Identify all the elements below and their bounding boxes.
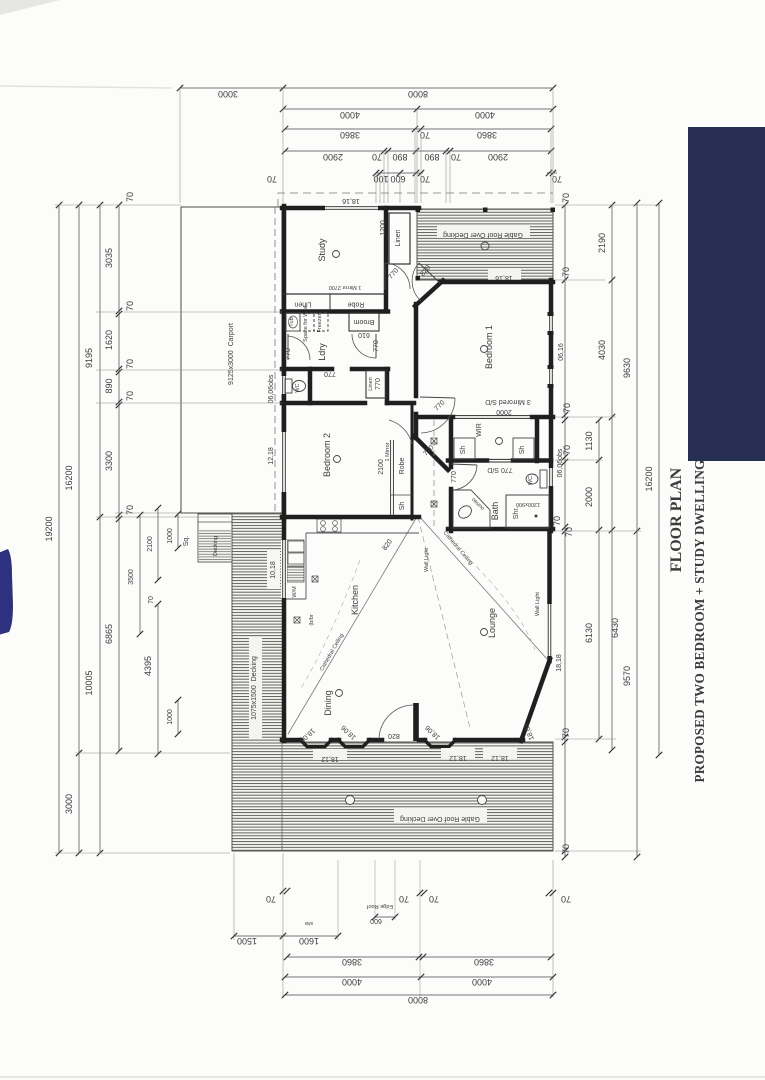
svg-text:3860: 3860 (474, 957, 494, 967)
svg-text:Robe: Robe (399, 458, 406, 475)
svg-text:3860: 3860 (340, 130, 360, 140)
svg-text:3 Mirrored S/D: 3 Mirrored S/D (485, 398, 531, 405)
svg-text:3500: 3500 (128, 569, 135, 585)
svg-text:890: 890 (424, 152, 439, 162)
svg-text:770: 770 (433, 399, 446, 412)
svg-text:70: 70 (420, 174, 430, 184)
svg-text:Wall Light: Wall Light (424, 548, 430, 572)
svg-text:770 S/D: 770 S/D (487, 466, 512, 473)
svg-text:Broom: Broom (354, 318, 375, 325)
svg-text:2100: 2100 (378, 459, 385, 475)
svg-text:770: 770 (387, 267, 400, 281)
svg-text:600: 600 (370, 917, 382, 924)
svg-text:1075x1500 Decking: 1075x1500 Decking (251, 656, 258, 720)
svg-text:Freezer: Freezer (317, 313, 323, 332)
svg-text:70: 70 (266, 894, 276, 904)
svg-text:70: 70 (552, 174, 562, 184)
svg-text:770: 770 (324, 370, 336, 377)
svg-text:18,18: 18,18 (556, 654, 563, 672)
svg-text:Study: Study (317, 238, 327, 262)
svg-text:9125x3000 Carport: 9125x3000 Carport (228, 323, 235, 385)
svg-text:Decking: Decking (213, 536, 219, 556)
svg-text:Sh: Sh (519, 446, 526, 455)
svg-text:Bedroom 2: Bedroom 2 (322, 433, 332, 477)
svg-text:70: 70 (125, 391, 135, 401)
svg-text:WC: WC (295, 383, 301, 392)
svg-text:4000: 4000 (472, 977, 492, 987)
svg-text:Ldry: Ldry (317, 343, 327, 361)
svg-text:70: 70 (429, 894, 439, 904)
svg-text:1200x900: 1200x900 (516, 501, 540, 507)
svg-text:770: 770 (375, 378, 382, 390)
svg-text:70: 70 (561, 193, 571, 203)
svg-text:3000: 3000 (64, 794, 74, 814)
svg-text:70: 70 (148, 596, 155, 604)
svg-text:1130: 1130 (584, 431, 594, 450)
svg-text:12,18: 12,18 (268, 447, 275, 465)
svg-text:1 Mirror 2700: 1 Mirror 2700 (329, 284, 362, 290)
svg-text:1600: 1600 (299, 936, 319, 946)
svg-text:70: 70 (451, 152, 461, 162)
svg-text:18,12: 18,12 (321, 755, 339, 762)
svg-text:70: 70 (552, 516, 562, 526)
svg-text:70: 70 (562, 403, 572, 413)
svg-text:3300: 3300 (104, 451, 114, 471)
svg-text:(b/br: (b/br (309, 614, 315, 625)
svg-text:1500: 1500 (237, 936, 257, 946)
svg-text:2900: 2900 (488, 152, 508, 162)
svg-text:4000: 4000 (342, 977, 362, 987)
svg-text:Kitchen: Kitchen (350, 585, 360, 615)
svg-text:70: 70 (372, 152, 382, 162)
svg-text:Gable Roof Over Decking: Gable Roof Over Decking (400, 815, 480, 822)
svg-text:06,06obs: 06,06obs (268, 374, 275, 403)
svg-text:820: 820 (388, 732, 400, 739)
svg-text:Linen: Linen (368, 377, 374, 390)
svg-text:70: 70 (420, 130, 430, 140)
svg-text:70: 70 (125, 192, 135, 202)
svg-text:18,12: 18,12 (449, 754, 467, 761)
svg-text:16200: 16200 (64, 465, 74, 490)
svg-text:70: 70 (561, 267, 571, 277)
svg-text:s/w: s/w (305, 920, 313, 926)
svg-text:18,16: 18,16 (342, 197, 360, 204)
svg-text:610: 610 (358, 331, 370, 338)
svg-text:10005: 10005 (84, 670, 94, 695)
svg-text:2000: 2000 (496, 408, 512, 415)
svg-text:9570: 9570 (622, 666, 632, 686)
svg-text:Robe: Robe (348, 301, 365, 308)
svg-text:oeuno: oeuno (470, 497, 485, 512)
svg-text:70: 70 (399, 894, 409, 904)
svg-text:9630: 9630 (622, 358, 632, 378)
svg-text:1 Mirror: 1 Mirror (385, 442, 391, 461)
svg-text:Sh: Sh (399, 502, 406, 511)
svg-text:1620: 1620 (104, 330, 114, 350)
svg-text:890: 890 (392, 152, 407, 162)
svg-text:70: 70 (562, 445, 572, 455)
svg-text:9195: 9195 (84, 348, 94, 368)
svg-text:18,06: 18,06 (298, 727, 316, 744)
svg-text:Wall Light: Wall Light (535, 592, 541, 616)
svg-text:820: 820 (382, 538, 394, 552)
svg-text:1200: 1200 (380, 220, 387, 236)
svg-text:70: 70 (561, 728, 571, 738)
svg-text:70: 70 (125, 359, 135, 369)
svg-text:WC: WC (528, 476, 534, 485)
svg-text:70: 70 (125, 505, 135, 515)
svg-text:WIR: WIR (476, 423, 483, 437)
svg-text:Cathedral Ceiling: Cathedral Ceiling (442, 530, 474, 566)
svg-text:Space for W.M.: Space for W.M. (303, 304, 309, 342)
svg-text:770: 770 (451, 471, 458, 483)
svg-text:19200: 19200 (44, 516, 54, 541)
svg-text:2900: 2900 (323, 152, 343, 162)
svg-text:890: 890 (104, 378, 114, 393)
svg-text:Shr.: Shr. (513, 507, 520, 520)
svg-text:6430: 6430 (610, 618, 620, 638)
svg-text:Linen: Linen (395, 229, 402, 246)
svg-text:16200: 16200 (644, 466, 654, 491)
svg-text:6130: 6130 (584, 623, 594, 643)
svg-text:18,12: 18,12 (491, 754, 509, 761)
svg-text:4395: 4395 (143, 656, 153, 676)
svg-text:Sq.: Sq. (183, 536, 190, 547)
svg-text:4000: 4000 (340, 110, 360, 120)
svg-text:4030: 4030 (597, 340, 607, 360)
svg-text:1000: 1000 (167, 528, 174, 544)
svg-text:70: 70 (561, 894, 571, 904)
svg-text:PROPOSED TWO BEDROOM + STUDY D: PROPOSED TWO BEDROOM + STUDY DWELLING (692, 459, 707, 782)
svg-text:600: 600 (390, 174, 405, 184)
svg-text:Edge Roof: Edge Roof (367, 903, 393, 909)
svg-text:2190: 2190 (597, 233, 607, 253)
svg-text:770: 770 (285, 348, 292, 360)
svg-text:Gable Roof Over Decking: Gable Roof Over Decking (443, 231, 523, 238)
svg-text:10,18: 10,18 (270, 561, 277, 579)
svg-text:70: 70 (125, 301, 135, 311)
svg-text:70: 70 (564, 527, 574, 537)
svg-text:Cathedral Ceiling: Cathedral Ceiling (319, 633, 345, 673)
svg-text:3860: 3860 (342, 957, 362, 967)
svg-text:3035: 3035 (104, 248, 114, 268)
svg-text:06,16: 06,16 (558, 343, 565, 361)
svg-text:2000: 2000 (584, 487, 594, 507)
svg-text:2100: 2100 (147, 536, 154, 552)
svg-text:70: 70 (561, 844, 571, 854)
svg-text:3860: 3860 (477, 130, 497, 140)
svg-text:FLOOR PLAN: FLOOR PLAN (668, 467, 685, 572)
svg-text:8000: 8000 (408, 995, 428, 1005)
svg-text:Lounge: Lounge (487, 608, 497, 638)
svg-text:770: 770 (373, 340, 380, 352)
svg-text:W/M: W/M (292, 586, 298, 598)
svg-text:Sh: Sh (460, 446, 467, 455)
svg-text:6865: 6865 (104, 624, 114, 644)
svg-text:18,06: 18,06 (340, 723, 358, 740)
svg-text:1000: 1000 (167, 709, 174, 725)
svg-text:Dining: Dining (323, 690, 333, 716)
svg-text:Tub: Tub (289, 317, 295, 326)
svg-text:3000: 3000 (218, 89, 238, 99)
svg-text:4000: 4000 (475, 110, 495, 120)
svg-text:Bedroom 1: Bedroom 1 (484, 325, 494, 369)
svg-text:70: 70 (267, 174, 277, 184)
svg-text:Bath: Bath (490, 502, 500, 521)
svg-text:8000: 8000 (408, 89, 428, 99)
